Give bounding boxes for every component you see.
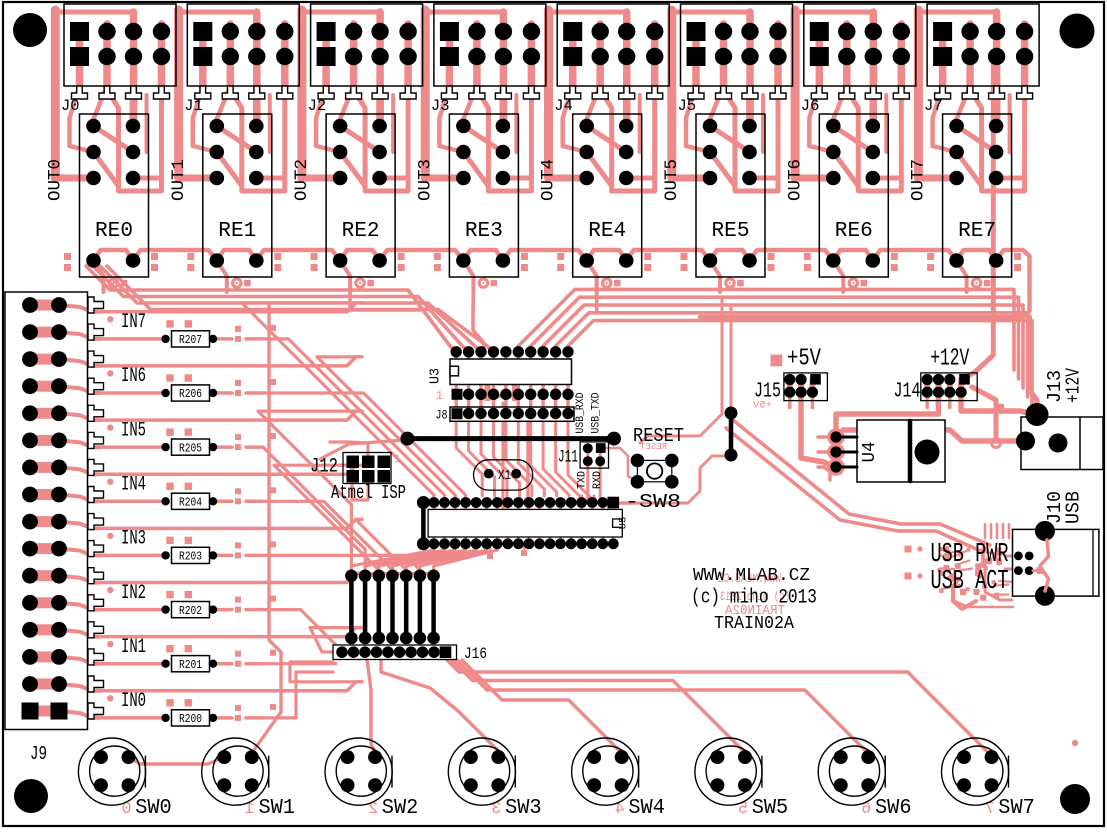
svg-text:J1: J1: [184, 97, 203, 115]
svg-text:IN0: IN0: [121, 690, 146, 713]
svg-text:J9: J9: [30, 743, 47, 765]
svg-text:J3: J3: [431, 97, 450, 115]
svg-text:+12V: +12V: [930, 345, 969, 372]
svg-text:-SW8: -SW8: [625, 491, 681, 513]
svg-text:RXD: RXD: [592, 471, 604, 489]
svg-text:J0: J0: [61, 97, 80, 115]
svg-text:IN7: IN7: [121, 311, 146, 334]
svg-text:WWW.MLAB.CZ: WWW.MLAB.CZ: [693, 565, 810, 586]
svg-text:U4: U4: [860, 442, 880, 463]
svg-text:OUT4: OUT4: [539, 159, 559, 201]
svg-text:TXD: TXD: [577, 471, 589, 489]
svg-text:Atmel ISP: Atmel ISP: [331, 482, 406, 504]
svg-text:R203: R203: [179, 550, 202, 564]
svg-text:(c) miho 2013: (c) miho 2013: [691, 587, 817, 610]
svg-text:RE0: RE0: [95, 219, 133, 243]
svg-text:RE4: RE4: [588, 219, 626, 243]
svg-text:+12V: +12V: [1063, 368, 1085, 403]
svg-text:RE7: RE7: [958, 219, 996, 243]
svg-text:IN1: IN1: [121, 636, 146, 659]
svg-text:IN6: IN6: [121, 365, 146, 388]
svg-text:RE1: RE1: [218, 219, 256, 243]
svg-text:SW2: SW2: [382, 797, 419, 820]
svg-text:OUT7: OUT7: [909, 159, 929, 201]
svg-text:J14: J14: [894, 381, 921, 404]
svg-text:USB_RXD: USB_RXD: [575, 392, 587, 433]
svg-text:R204: R204: [179, 496, 202, 510]
svg-text:SW6: SW6: [875, 797, 912, 820]
svg-text:USB: USB: [1063, 491, 1085, 524]
svg-text:J15: J15: [754, 381, 781, 404]
svg-text:TRAIN02A: TRAIN02A: [714, 613, 795, 634]
svg-text:USB_TXD: USB_TXD: [591, 392, 603, 433]
svg-text:OUT0: OUT0: [46, 159, 66, 201]
svg-text:USB ACT: USB ACT: [931, 567, 1009, 597]
svg-text:1: 1: [436, 389, 443, 403]
svg-text:OUT3: OUT3: [415, 159, 435, 201]
svg-text:SW5: SW5: [752, 797, 789, 820]
svg-text:OUT5: OUT5: [662, 159, 682, 201]
svg-text:J4: J4: [554, 97, 573, 115]
svg-text:SW4: SW4: [628, 797, 665, 820]
svg-text:U5: U5: [618, 517, 630, 530]
svg-text:IN3: IN3: [121, 528, 146, 551]
svg-text:IN2: IN2: [121, 582, 146, 605]
svg-text:RESET: RESET: [633, 425, 684, 447]
svg-text:R201: R201: [179, 658, 202, 672]
svg-text:U3: U3: [429, 368, 444, 384]
svg-text:RE3: RE3: [465, 219, 503, 243]
svg-text:J11: J11: [558, 448, 578, 468]
svg-text:R205: R205: [179, 441, 202, 455]
svg-text:R206: R206: [179, 387, 202, 401]
svg-text:+5V: +5V: [787, 345, 821, 372]
svg-text:SW1: SW1: [259, 797, 296, 820]
svg-text:IN5: IN5: [121, 419, 146, 442]
svg-text:OUT1: OUT1: [169, 159, 189, 201]
svg-text:X1: X1: [498, 468, 511, 484]
svg-text:1: 1: [394, 454, 401, 466]
svg-text:USB PWR: USB PWR: [931, 540, 1009, 570]
svg-text:OUT2: OUT2: [292, 159, 312, 201]
svg-text:SW7: SW7: [998, 797, 1035, 820]
svg-text:J6: J6: [801, 97, 820, 115]
svg-text:J7: J7: [924, 97, 943, 115]
svg-text:J16: J16: [464, 645, 487, 663]
svg-text:J12: J12: [310, 456, 338, 479]
svg-text:OUT6: OUT6: [785, 159, 805, 201]
svg-text:R207: R207: [179, 333, 202, 347]
svg-text:RE5: RE5: [712, 219, 750, 243]
svg-text:R202: R202: [179, 604, 202, 618]
svg-text:J5: J5: [678, 97, 697, 115]
svg-text:J8: J8: [436, 408, 448, 423]
svg-text:R200: R200: [179, 712, 202, 726]
svg-text:J2: J2: [308, 97, 327, 115]
svg-text:SW3: SW3: [505, 797, 541, 820]
svg-text:IN4: IN4: [121, 474, 146, 497]
svg-text:RE6: RE6: [835, 219, 873, 243]
svg-text:SW0: SW0: [135, 797, 172, 820]
svg-text:RE2: RE2: [342, 219, 380, 243]
